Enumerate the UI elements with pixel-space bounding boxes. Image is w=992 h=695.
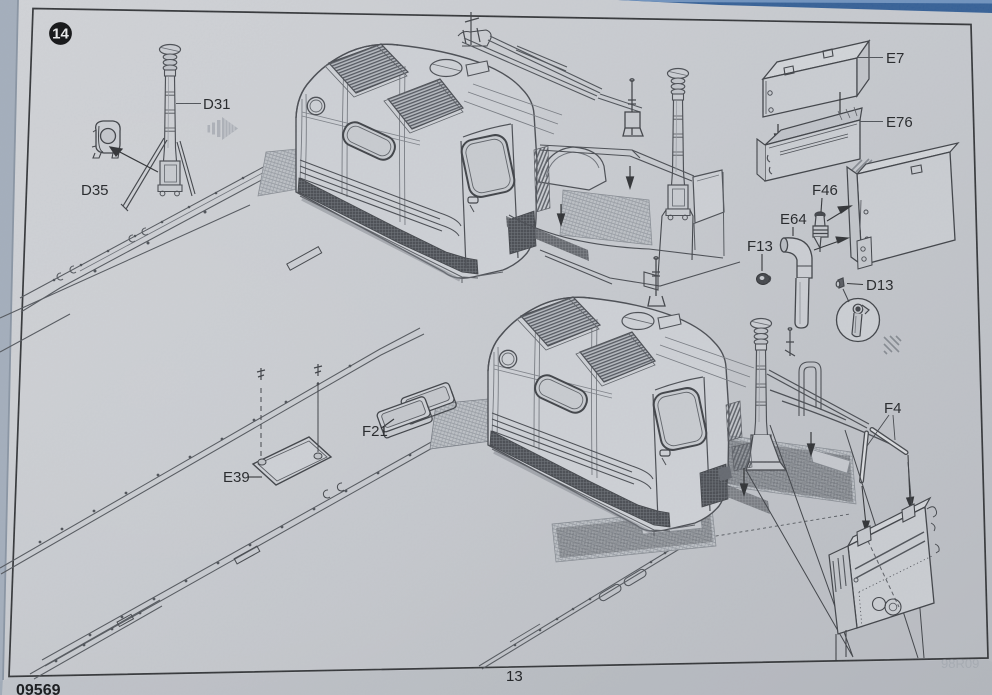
svg-text:13: 13 <box>506 668 523 685</box>
svg-text:14: 14 <box>52 26 69 43</box>
svg-text:98R09: 98R09 <box>941 656 979 671</box>
svg-text:09569: 09569 <box>16 682 61 695</box>
